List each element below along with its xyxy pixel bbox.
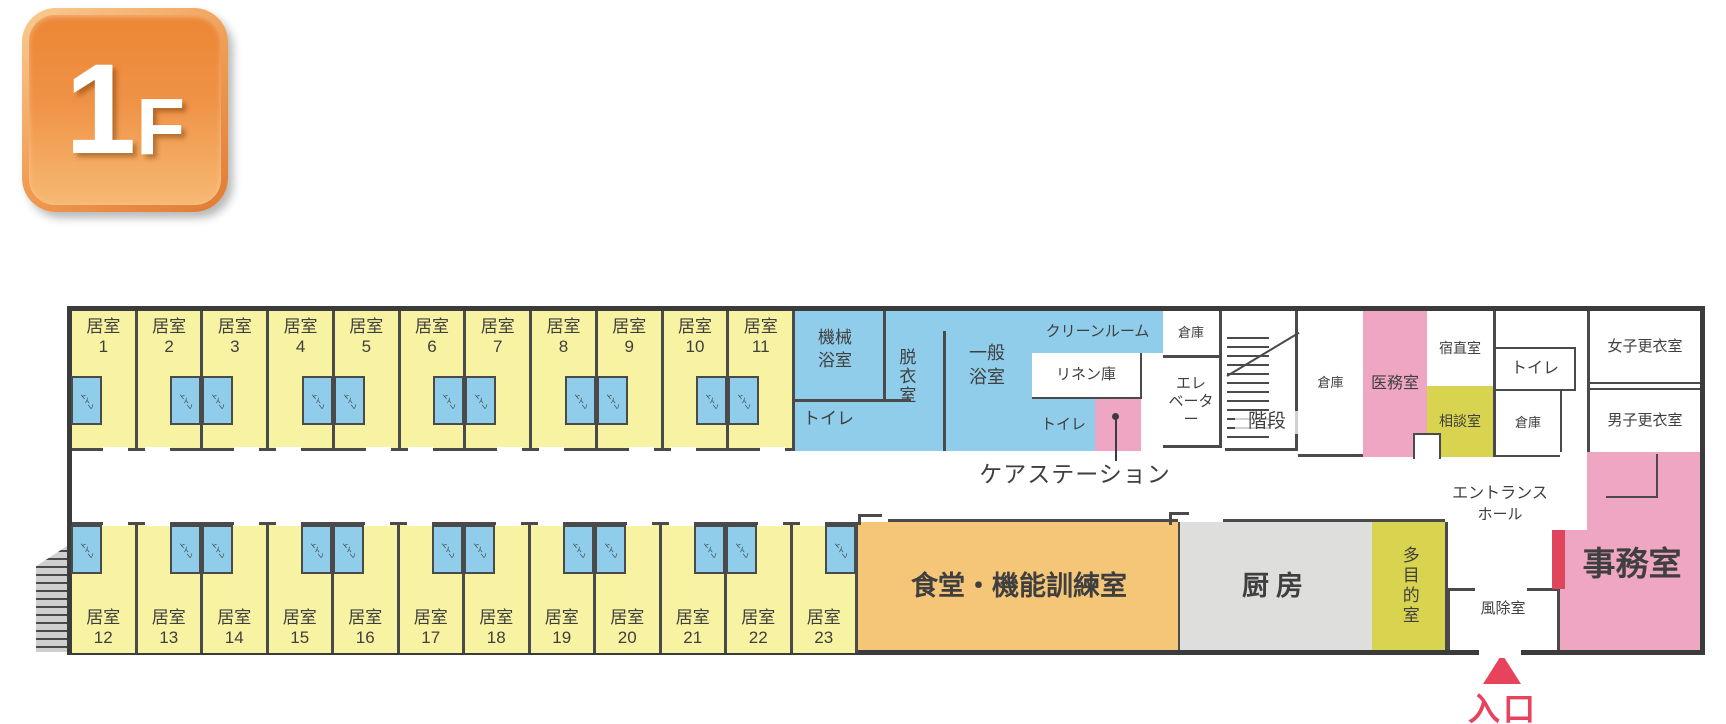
room-toilet-icon: トイレ: [334, 376, 365, 425]
room-4: 居室4トイレ: [269, 311, 335, 448]
back-toilet: トイレ: [1496, 347, 1576, 391]
wall: [888, 519, 1178, 522]
room-label-text: 居室: [598, 317, 661, 337]
room-label: 居室9: [598, 317, 661, 357]
room-8: 居室8トイレ: [532, 311, 598, 448]
wall: [1493, 311, 1496, 457]
room-label-text: 居室: [596, 608, 659, 628]
linen-storage-label: リネン庫: [1056, 366, 1116, 384]
room-label: 居室5: [335, 317, 398, 357]
room-label-text: 居室: [400, 608, 463, 628]
room-number: 18: [465, 628, 528, 648]
room-label: 居室12: [72, 608, 135, 648]
linen-storage: リネン庫: [1032, 353, 1142, 399]
room-toilet-label: トイレ: [78, 540, 95, 558]
floor-number: 1: [65, 46, 136, 174]
wall: [1557, 588, 1560, 650]
room-number: 16: [334, 628, 397, 648]
room-label-text: 居室: [203, 317, 266, 337]
room-toilet-icon: トイレ: [728, 376, 759, 425]
room-label: 居室15: [269, 608, 332, 648]
room-label-text: 居室: [335, 317, 398, 337]
medical-room-door-notch: [1413, 433, 1441, 459]
room-15: 居室15トイレ: [269, 525, 335, 653]
storage-2-label: 倉庫: [1317, 375, 1343, 391]
room-toilet-icon: トイレ: [432, 525, 463, 574]
room-toilet-label: トイレ: [340, 540, 357, 558]
room-number: 7: [466, 337, 529, 357]
floor-1f-badge[interactable]: 1 F: [22, 8, 228, 212]
room-door-opening: [538, 519, 563, 526]
room-number: 20: [596, 628, 659, 648]
room-label: 居室14: [203, 608, 266, 648]
room-door-opening: [496, 519, 521, 526]
room-number: 23: [793, 628, 856, 648]
wall: [1447, 588, 1475, 591]
floor-1f-badge-face: 1 F: [29, 15, 221, 205]
room-label-text: 居室: [466, 317, 529, 337]
bath-block: 機械浴室 脱衣室 一般浴室 トイレ: [795, 311, 1032, 451]
room-label: 居室22: [727, 608, 790, 648]
care-station-pointer-line: [1115, 419, 1117, 461]
room-label-text: 居室: [269, 608, 332, 628]
room-16: 居室16トイレ: [334, 525, 400, 653]
storage-1: 倉庫: [1163, 311, 1222, 358]
night-duty-label: 宿直室: [1439, 340, 1481, 357]
kitchen-room: 厨房: [1180, 522, 1372, 650]
room-number: 15: [269, 628, 332, 648]
room-toilet-icon: トイレ: [464, 525, 495, 574]
room-17: 居室17トイレ: [400, 525, 466, 653]
room-number: 9: [598, 337, 661, 357]
clean-room: クリーンルーム: [1032, 311, 1163, 353]
room-7: 居室7トイレ: [466, 311, 532, 448]
room-door-opening: [103, 447, 128, 454]
room-label-text: 居室: [662, 608, 725, 628]
room-toilet-label: トイレ: [602, 540, 619, 558]
room-label: 居室19: [531, 608, 594, 648]
room-door-opening: [407, 519, 432, 526]
upper-room-row: 居室1トイレ居室2トイレ居室3トイレ居室4トイレ居室5トイレ居室6トイレ居室7ト…: [72, 311, 795, 451]
room-label-text: 居室: [727, 608, 790, 628]
room-toilet-icon: トイレ: [595, 525, 626, 574]
room-toilet-label: トイレ: [570, 540, 587, 558]
room-20: 居室20トイレ: [596, 525, 662, 653]
room-toilet-icon: トイレ: [694, 525, 725, 574]
room-23: 居室23トイレ: [793, 525, 859, 653]
room-toilet-icon: トイレ: [170, 376, 201, 425]
dining-training-label: 食堂・機能訓練室: [911, 570, 1127, 602]
dining-training-room: 食堂・機能訓練室: [858, 522, 1180, 650]
room-number: 22: [727, 628, 790, 648]
room-door-opening: [539, 447, 564, 454]
room-toilet-label: トイレ: [78, 391, 95, 409]
room-number: 17: [400, 628, 463, 648]
storage-2: 倉庫: [1298, 311, 1363, 457]
entrance-arrow-icon: [1483, 654, 1521, 684]
kitchen-label: 厨房: [1242, 570, 1310, 602]
corridor-toilet-label: トイレ: [1041, 416, 1086, 434]
room-number: 12: [72, 628, 135, 648]
wall: [943, 331, 946, 451]
room-label: 居室10: [664, 317, 727, 357]
room-toilet-label: トイレ: [733, 540, 750, 558]
storage-1-label: 倉庫: [1178, 325, 1204, 341]
room-label-text: 居室: [269, 317, 332, 337]
room-toilet-icon: トイレ: [465, 376, 496, 425]
room-door-opening: [276, 519, 301, 526]
room-door-opening: [234, 519, 259, 526]
room-number: 6: [401, 337, 464, 357]
room-number: 8: [532, 337, 595, 357]
room-number: 19: [531, 628, 594, 648]
room-label: 居室11: [729, 317, 792, 357]
room-number: 1: [72, 337, 135, 357]
room-toilet-icon: トイレ: [825, 525, 856, 574]
room-door-opening: [800, 519, 825, 526]
machine-bath-room: 機械浴室: [815, 327, 855, 373]
building-outline: 居室1トイレ居室2トイレ居室3トイレ居室4トイレ居室5トイレ居室6トイレ居室7ト…: [67, 306, 1705, 655]
mens-locker-room: 男子更衣室: [1590, 390, 1700, 452]
room-toilet-label: トイレ: [309, 391, 326, 409]
night-duty-room: 宿直室: [1427, 311, 1493, 386]
room-number: 2: [138, 337, 201, 357]
undressing-room: 脱衣室: [895, 321, 915, 431]
care-station-square: [1095, 399, 1141, 451]
room-label: 居室2: [138, 317, 201, 357]
room-19: 居室19トイレ: [531, 525, 597, 653]
room-toilet-label: トイレ: [701, 540, 718, 558]
room-toilet-label: トイレ: [209, 540, 226, 558]
room-label: 居室13: [138, 608, 201, 648]
room-toilet-icon: トイレ: [302, 376, 333, 425]
room-door-opening: [671, 447, 696, 454]
room-1: 居室1トイレ: [72, 311, 138, 448]
room-toilet-icon: トイレ: [170, 525, 201, 574]
room-toilet-icon: トイレ: [71, 376, 102, 425]
room-label: 居室18: [465, 608, 528, 648]
room-label-text: 居室: [138, 608, 201, 628]
room-9: 居室9トイレ: [598, 311, 664, 448]
room-toilet-label: トイレ: [832, 540, 849, 558]
room-number: 13: [138, 628, 201, 648]
room-label: 居室17: [400, 608, 463, 648]
room-label-text: 居室: [203, 608, 266, 628]
room-toilet-icon: トイレ: [597, 376, 628, 425]
room-door-opening: [234, 447, 259, 454]
room-6: 居室6トイレ: [401, 311, 467, 448]
storage-3: 倉庫: [1496, 391, 1562, 457]
room-number: 4: [269, 337, 332, 357]
office-partition-wall: [1606, 496, 1658, 498]
elevator-label-line1: エレ: [1176, 375, 1206, 393]
wall: [1590, 388, 1700, 390]
room-5: 居室5トイレ: [335, 311, 401, 448]
room-door-opening: [145, 519, 170, 526]
entrance-opening: [1479, 646, 1521, 658]
room-toilet-label: トイレ: [441, 391, 458, 409]
reception-counter: [1552, 530, 1565, 589]
room-toilet-label: トイレ: [439, 540, 456, 558]
office-room: 事務室: [1560, 452, 1700, 650]
room-toilet-label: トイレ: [471, 540, 488, 558]
elevator: エレ ベーター: [1163, 358, 1222, 448]
room-toilet-label: トイレ: [736, 391, 753, 409]
room-13: 居室13トイレ: [138, 525, 204, 653]
wall: [1178, 522, 1180, 650]
room-10: 居室10トイレ: [664, 311, 730, 448]
back-toilet-label: トイレ: [1511, 359, 1559, 378]
room-number: 21: [662, 628, 725, 648]
elevator-label-line2: ベーター: [1163, 393, 1219, 429]
lower-room-row: 居室12トイレ居室13トイレ居室14トイレ居室15トイレ居室16トイレ居室17ト…: [72, 522, 858, 653]
multipurpose-label: 多目的室: [1398, 546, 1418, 626]
room-toilet-label: トイレ: [178, 391, 195, 409]
mens-locker-label: 男子更衣室: [1607, 412, 1682, 430]
room-2: 居室2トイレ: [138, 311, 204, 448]
room-toilet-label: トイレ: [341, 391, 358, 409]
room-number: 11: [729, 337, 792, 357]
womens-locker-label: 女子更衣室: [1607, 338, 1682, 356]
room-label: 居室7: [466, 317, 529, 357]
room-door-opening: [276, 447, 301, 454]
bath-toilet: トイレ: [803, 409, 865, 429]
room-number: 10: [664, 337, 727, 357]
room-14: 居室14トイレ: [203, 525, 269, 653]
entrance-hall-line1: エントランス: [1415, 484, 1585, 503]
room-11: 居室11トイレ: [729, 311, 795, 448]
windbreak-room-label: 風除室: [1453, 600, 1553, 618]
wall: [1590, 382, 1700, 384]
womens-locker-room: 女子更衣室: [1590, 311, 1700, 382]
room-door-opening: [366, 447, 391, 454]
room-label-text: 居室: [72, 317, 135, 337]
entrance-label: 入口: [1448, 684, 1558, 724]
care-station-label: ケアステーション: [960, 461, 1190, 489]
corridor-toilet: トイレ: [1032, 399, 1095, 451]
room-label-text: 居室: [138, 317, 201, 337]
room-label: 居室21: [662, 608, 725, 648]
room-toilet-icon: トイレ: [563, 525, 594, 574]
multipurpose-room: 多目的室: [1372, 522, 1445, 650]
wall: [883, 311, 886, 401]
storage-3-label: 倉庫: [1515, 415, 1541, 431]
room-number: 5: [335, 337, 398, 357]
room-label-text: 居室: [334, 608, 397, 628]
room-toilet-label: トイレ: [704, 391, 721, 409]
wall: [1445, 522, 1448, 650]
room-label: 居室23: [793, 608, 856, 648]
room-label: 居室8: [532, 317, 595, 357]
floor-plan-page: 1 F 居室1トイレ居室2トイレ居室3トイレ居室4トイレ居室5トイレ居室6トイレ…: [0, 0, 1726, 724]
room-toilet-label: トイレ: [604, 391, 621, 409]
room-door-opening: [669, 519, 694, 526]
room-label: 居室4: [269, 317, 332, 357]
room-toilet-label: トイレ: [177, 540, 194, 558]
room-label: 居室20: [596, 608, 659, 648]
room-toilet-icon: トイレ: [333, 525, 364, 574]
wall: [1372, 519, 1445, 522]
room-22: 居室22トイレ: [727, 525, 793, 653]
room-toilet-icon: トイレ: [301, 525, 332, 574]
wall: [795, 399, 911, 402]
office-label: 事務室: [1566, 544, 1698, 584]
room-12: 居室12トイレ: [72, 525, 138, 653]
room-label-text: 居室: [664, 317, 727, 337]
clean-room-label: クリーンルーム: [1046, 323, 1150, 341]
room-label-text: 居室: [465, 608, 528, 628]
room-door-opening: [629, 447, 654, 454]
wall: [1223, 519, 1372, 522]
room-toilet-label: トイレ: [210, 391, 227, 409]
room-door-opening: [408, 447, 433, 454]
room-3: 居室3トイレ: [203, 311, 269, 448]
room-toilet-label: トイレ: [572, 391, 589, 409]
room-18: 居室18トイレ: [465, 525, 531, 653]
room-label-text: 居室: [793, 608, 856, 628]
stairs-label: 階段: [1235, 411, 1299, 434]
room-21: 居室21トイレ: [662, 525, 728, 653]
room-toilet-icon: トイレ: [565, 376, 596, 425]
office-partition-wall: [1656, 454, 1658, 498]
room-label-text: 居室: [72, 608, 135, 628]
room-label-text: 居室: [532, 317, 595, 337]
room-door-opening: [145, 447, 170, 454]
room-door-opening: [627, 519, 652, 526]
wall: [1169, 512, 1189, 515]
room-toilet-icon: トイレ: [433, 376, 464, 425]
room-toilet-icon: トイレ: [71, 525, 102, 574]
room-number: 3: [203, 337, 266, 357]
room-toilet-icon: トイレ: [202, 376, 233, 425]
room-toilet-icon: トイレ: [696, 376, 727, 425]
room-label: 居室3: [203, 317, 266, 357]
general-bath-room: 一般浴室: [967, 341, 1007, 390]
room-door-opening: [497, 447, 522, 454]
stairs-area: 階段: [1225, 311, 1298, 451]
room-number: 14: [203, 628, 266, 648]
room-door-opening: [103, 519, 128, 526]
room-label: 居室16: [334, 608, 397, 648]
consultation-room-label: 相談室: [1439, 413, 1481, 430]
room-toilet-label: トイレ: [473, 391, 490, 409]
room-toilet-icon: トイレ: [726, 525, 757, 574]
room-door-opening: [365, 519, 390, 526]
room-toilet-icon: トイレ: [202, 525, 233, 574]
floor-suffix: F: [136, 87, 185, 167]
room-label-text: 居室: [531, 608, 594, 628]
room-label-text: 居室: [401, 317, 464, 337]
room-toilet-label: トイレ: [308, 540, 325, 558]
room-door-opening: [760, 447, 785, 454]
room-label: 居室6: [401, 317, 464, 357]
room-label: 居室1: [72, 317, 135, 357]
wall: [858, 514, 882, 517]
room-door-opening: [758, 519, 783, 526]
medical-room-label: 医務室: [1371, 374, 1419, 393]
room-label-text: 居室: [729, 317, 792, 337]
